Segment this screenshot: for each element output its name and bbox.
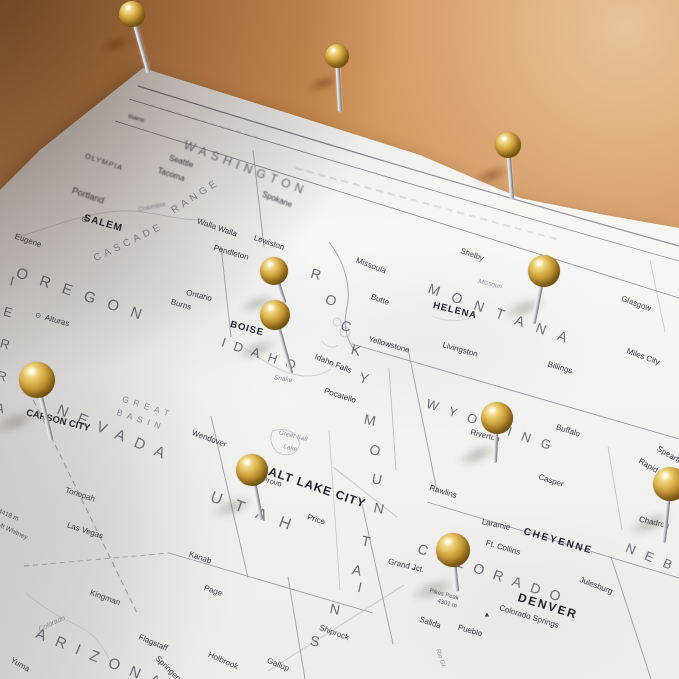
push-pin-helena-pin [528,255,560,287]
push-pin-cork-top-right [495,132,521,158]
push-pins-layer [0,0,679,679]
push-pin-riverton-pin [481,402,513,434]
pin-shadow-boise-lower-pin [234,335,279,365]
push-pin-boise-upper-pin [260,257,288,285]
push-pin-cork-top-mid [325,44,349,68]
pin-shadow-denver-pin [407,572,458,606]
pin-shadow-cork-top-right [473,162,512,188]
push-pin-salt-lake-city-pin [236,454,268,486]
pin-shadow-helena-pin [501,292,549,324]
push-pin-denver-pin [436,533,470,567]
pin-shadow-cork-top-left [97,31,136,57]
push-pin-cork-top-left [119,1,145,27]
pin-shadow-salt-lake-city-pin [209,491,257,523]
photo-of-pinned-map: BlaineWASHINGTONOLYMPIASeattleTacomaSpok… [0,0,679,679]
pin-shadow-carson-city-pin [0,403,42,439]
push-pin-boise-lower-pin [260,300,290,330]
push-pin-carson-city-pin [19,362,55,398]
push-pin-chadron-pin [653,467,679,501]
